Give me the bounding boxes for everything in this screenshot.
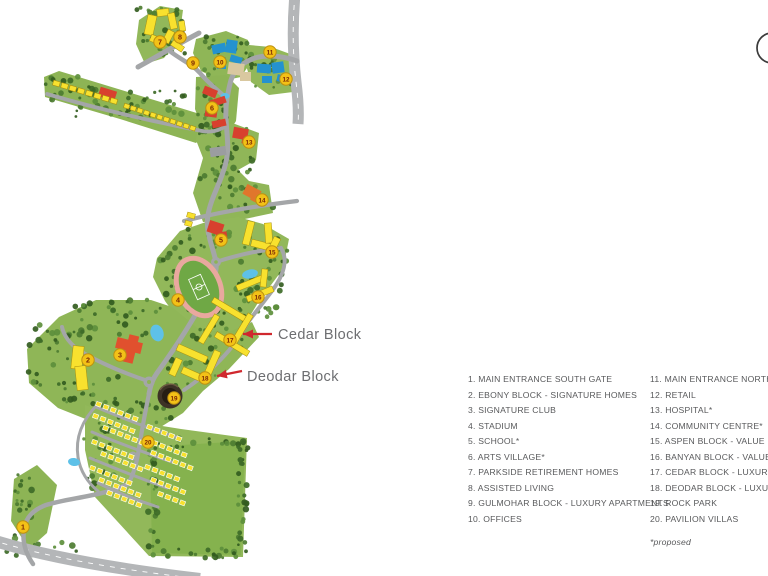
tree-icon — [239, 41, 243, 45]
legend-item: 4. STADIUM — [468, 419, 669, 435]
tree-icon — [165, 254, 171, 260]
tree-icon — [159, 307, 162, 310]
tree-icon — [223, 312, 226, 315]
tree-icon — [237, 494, 240, 497]
tree-icon — [224, 327, 229, 332]
tree-icon — [228, 176, 234, 182]
tree-icon — [265, 314, 270, 319]
tree-icon — [239, 292, 242, 295]
master-plan-map: 1234567891011121314151617181920 Cedar Bl… — [0, 0, 380, 576]
tree-icon — [236, 471, 241, 476]
tree-icon — [202, 67, 207, 72]
tree-icon — [198, 132, 201, 135]
tree-icon — [268, 310, 273, 315]
tree-icon — [254, 63, 257, 66]
building — [240, 72, 251, 81]
marker-number: 18 — [201, 376, 209, 383]
marker-number: 20 — [144, 440, 152, 447]
tree-icon — [116, 313, 119, 316]
tree-icon — [236, 36, 239, 39]
tree-icon — [194, 553, 197, 556]
tree-icon — [238, 447, 243, 452]
tree-icon — [196, 113, 200, 117]
tree-icon — [89, 473, 95, 479]
tree-icon — [77, 308, 82, 313]
tree-icon — [178, 111, 184, 117]
legend-item: 11. MAIN ENTRANCE NORTH GATE — [650, 372, 768, 388]
tree-icon — [204, 34, 209, 39]
tree-icon — [66, 357, 69, 360]
legend-column-2: 11. MAIN ENTRANCE NORTH GATE12. RETAIL13… — [650, 372, 768, 527]
legend-item: 16. BANYAN BLOCK - VALUE PLUS HOMES — [650, 450, 768, 466]
building — [75, 365, 88, 390]
marker-number: 15 — [268, 250, 276, 257]
legend-item: 12. RETAIL — [650, 388, 768, 404]
legend-item: 19. ROCK PARK — [650, 496, 768, 512]
tree-icon — [128, 90, 133, 95]
tree-icon — [172, 245, 178, 251]
tree-icon — [198, 123, 204, 129]
tree-icon — [87, 324, 93, 330]
tree-icon — [254, 85, 257, 88]
tree-icon — [237, 530, 242, 535]
tree-icon — [16, 499, 19, 502]
tree-icon — [18, 483, 23, 488]
map-marker-1: 1 — [17, 521, 29, 533]
map-marker-7: 7 — [154, 36, 166, 48]
tree-icon — [54, 329, 61, 336]
tree-icon — [117, 320, 121, 324]
map-marker-5: 5 — [215, 234, 227, 246]
tree-icon — [244, 482, 250, 488]
map-marker-16: 16 — [252, 291, 264, 303]
legend-item: 14. COMMUNITY CENTRE* — [650, 419, 768, 435]
tree-icon — [126, 300, 129, 303]
tree-icon — [243, 506, 249, 512]
tree-icon — [31, 379, 37, 385]
tree-icon — [151, 552, 156, 557]
building — [257, 64, 272, 74]
tree-icon — [165, 106, 172, 113]
tree-icon — [141, 39, 145, 43]
tree-icon — [16, 491, 20, 495]
marker-number: 8 — [178, 33, 182, 42]
tree-icon — [67, 78, 73, 84]
tree-icon — [236, 503, 240, 507]
map-marker-11: 11 — [264, 46, 276, 58]
legend-item: 7. PARKSIDE RETIREMENT HOMES — [468, 465, 669, 481]
tree-icon — [76, 110, 79, 113]
tree-icon — [202, 173, 208, 179]
legend-item: 13. HOSPITAL* — [650, 403, 768, 419]
marker-number: 9 — [191, 59, 195, 68]
tree-icon — [51, 362, 57, 368]
tree-icon — [93, 312, 97, 316]
tree-icon — [207, 46, 211, 50]
tree-icon — [53, 546, 56, 549]
tree-icon — [109, 300, 115, 306]
tree-icon — [140, 411, 143, 414]
tree-icon — [214, 374, 217, 377]
building — [264, 223, 272, 243]
map-marker-17: 17 — [224, 334, 236, 346]
tree-icon — [165, 553, 171, 559]
tree-icon — [128, 408, 134, 414]
legend-item: 9. GULMOHAR BLOCK - LUXURY APARTMENTS — [468, 496, 669, 512]
tree-icon — [112, 400, 117, 405]
marker-number: 16 — [254, 295, 262, 302]
deodar-block-label: Deodar Block — [247, 369, 339, 385]
tree-icon — [203, 39, 208, 44]
tree-icon — [242, 493, 246, 497]
tree-icon — [203, 245, 206, 248]
tree-icon — [33, 326, 39, 332]
tree-icon — [115, 374, 121, 380]
tree-icon — [232, 142, 235, 145]
tree-icon — [117, 332, 122, 337]
marker-number: 11 — [267, 50, 274, 57]
marker-number: 19 — [170, 396, 178, 403]
tree-icon — [20, 503, 23, 506]
tree-icon — [20, 479, 23, 482]
map-marker-3: 3 — [114, 349, 126, 361]
tree-icon — [145, 509, 151, 515]
tree-icon — [240, 438, 247, 445]
marker-number: 4 — [176, 296, 180, 305]
tree-icon — [230, 193, 235, 198]
tree-icon — [73, 331, 76, 334]
tree-icon — [196, 86, 200, 90]
tree-icon — [244, 41, 249, 46]
tree-icon — [206, 72, 211, 77]
tree-icon — [65, 401, 68, 404]
legend-item: 10. OFFICES — [468, 512, 669, 528]
tree-icon — [172, 110, 177, 115]
tree-icon — [108, 443, 111, 446]
tree-icon — [221, 556, 224, 559]
tree-icon — [249, 156, 252, 159]
map-marker-8: 8 — [174, 31, 186, 43]
tree-icon — [57, 382, 61, 386]
tree-icon — [86, 335, 92, 341]
tree-icon — [163, 291, 170, 298]
tree-icon — [146, 39, 149, 42]
tree-icon — [189, 248, 196, 255]
map-marker-9: 9 — [187, 57, 199, 69]
tree-icon — [168, 415, 174, 421]
tree-icon — [219, 321, 224, 326]
tree-icon — [161, 258, 166, 263]
tree-icon — [153, 446, 157, 450]
tree-icon — [82, 437, 85, 440]
legend-column-1: 1. MAIN ENTRANCE SOUTH GATE2. EBONY BLOC… — [468, 372, 669, 527]
tree-icon — [140, 334, 144, 338]
tree-icon — [159, 90, 162, 93]
cedar-block-label: Cedar Block — [278, 327, 362, 343]
legend-item: 8. ASSISTED LIVING — [468, 481, 669, 497]
tree-icon — [35, 337, 42, 344]
tree-icon — [98, 422, 101, 425]
tree-icon — [241, 517, 245, 521]
tree-icon — [25, 508, 28, 511]
marker-number: 1 — [21, 523, 25, 532]
tree-icon — [46, 330, 49, 333]
tree-icon — [78, 97, 81, 100]
tree-icon — [135, 400, 138, 403]
tree-icon — [224, 441, 229, 446]
tree-icon — [208, 345, 214, 351]
tree-icon — [243, 500, 249, 506]
building — [262, 76, 272, 83]
legend-item: 18. DEODAR BLOCK - LUXURY HOMES — [650, 481, 768, 497]
tree-icon — [123, 313, 129, 319]
tree-icon — [87, 85, 90, 88]
tree-icon — [212, 552, 216, 556]
tree-icon — [179, 240, 184, 245]
tree-icon — [122, 321, 128, 327]
building — [157, 8, 170, 16]
tree-icon — [26, 369, 32, 375]
tree-icon — [75, 115, 78, 118]
tree-icon — [113, 397, 117, 401]
tree-icon — [245, 445, 250, 450]
legend-item: 6. ARTS VILLAGE* — [468, 450, 669, 466]
tree-icon — [143, 331, 148, 336]
tree-icon — [228, 185, 232, 189]
tree-icon — [220, 442, 224, 446]
tree-icon — [146, 543, 152, 549]
tree-icon — [213, 67, 216, 70]
tree-icon — [54, 338, 58, 342]
tree-icon — [155, 539, 160, 544]
tree-icon — [128, 310, 133, 315]
north-indicator — [746, 24, 768, 72]
tree-icon — [81, 303, 85, 307]
tree-icon — [37, 322, 43, 328]
tree-icon — [243, 203, 247, 207]
building — [178, 21, 185, 32]
tree-icon — [80, 330, 84, 334]
tree-icon — [154, 310, 158, 314]
tree-icon — [91, 392, 96, 397]
tree-icon — [28, 487, 35, 494]
tree-icon — [62, 381, 66, 385]
tree-icon — [71, 396, 77, 402]
legend-item: 15. ASPEN BLOCK - VALUE PLUS HOMES — [650, 434, 768, 450]
tree-icon — [208, 437, 211, 440]
tree-icon — [62, 397, 66, 401]
tree-icon — [166, 366, 171, 371]
tree-icon — [204, 122, 210, 128]
tree-icon — [81, 391, 85, 395]
tree-icon — [206, 548, 211, 553]
map-marker-10: 10 — [214, 56, 226, 68]
marker-number: 7 — [158, 38, 162, 47]
tree-icon — [134, 317, 137, 320]
legend-item: 1. MAIN ENTRANCE SOUTH GATE — [468, 372, 669, 388]
tree-icon — [230, 165, 237, 172]
tree-icon — [47, 347, 51, 351]
tree-icon — [39, 383, 43, 387]
tree-icon — [27, 342, 33, 348]
legend-item: 3. SIGNATURE CLUB — [468, 403, 669, 419]
tree-icon — [73, 304, 79, 310]
tree-icon — [183, 361, 189, 367]
building — [271, 61, 284, 74]
tree-icon — [239, 308, 243, 312]
marker-number: 12 — [282, 77, 290, 84]
tree-icon — [126, 96, 131, 101]
tree-icon — [237, 536, 243, 542]
legend-item: 20. PAVILION VILLAS — [650, 512, 768, 528]
tree-icon — [75, 74, 81, 80]
tree-icon — [106, 377, 111, 382]
tree-icon — [21, 500, 24, 503]
tree-icon — [188, 237, 192, 241]
tree-icon — [285, 249, 289, 253]
tree-icon — [15, 502, 19, 506]
tree-icon — [245, 170, 250, 175]
map-marker-20: 20 — [142, 436, 154, 448]
tree-icon — [203, 555, 208, 560]
tree-icon — [242, 298, 247, 303]
tree-icon — [254, 285, 260, 291]
tree-icon — [164, 417, 167, 420]
tree-icon — [200, 244, 203, 247]
tree-icon — [139, 401, 143, 405]
tree-icon — [220, 547, 224, 551]
tree-icon — [151, 545, 154, 548]
tree-icon — [151, 460, 157, 466]
tree-icon — [175, 444, 180, 449]
tree-icon — [17, 507, 22, 512]
tree-icon — [208, 443, 211, 446]
building — [225, 39, 238, 53]
tree-icon — [243, 246, 246, 249]
tree-icon — [212, 38, 216, 42]
map-marker-4: 4 — [172, 294, 184, 306]
tree-icon — [273, 304, 279, 310]
marker-number: 14 — [258, 198, 266, 205]
tree-icon — [164, 100, 169, 105]
map-marker-13: 13 — [243, 136, 255, 148]
map-marker-12: 12 — [280, 73, 292, 85]
tree-icon — [238, 457, 244, 463]
tree-icon — [35, 372, 39, 376]
tree-icon — [172, 102, 176, 106]
tree-icon — [182, 446, 185, 449]
tree-icon — [233, 145, 239, 151]
tree-icon — [154, 509, 161, 516]
legend-item: 2. EBONY BLOCK - SIGNATURE HOMES — [468, 388, 669, 404]
tree-icon — [245, 51, 248, 54]
tree-icon — [198, 328, 202, 332]
tree-icon — [267, 276, 272, 281]
map-marker-6: 6 — [206, 102, 218, 114]
tree-icon — [64, 387, 67, 390]
tree-icon — [239, 187, 242, 190]
tree-icon — [238, 481, 241, 484]
tree-icon — [153, 91, 156, 94]
tree-icon — [203, 117, 207, 121]
tree-icon — [218, 196, 221, 199]
tree-icon — [180, 93, 185, 98]
tree-icon — [80, 318, 83, 321]
map-marker-15: 15 — [266, 246, 278, 258]
tree-icon — [148, 528, 153, 533]
tree-icon — [107, 305, 111, 309]
tree-icon — [161, 548, 167, 554]
tree-icon — [277, 288, 283, 294]
tree-icon — [189, 551, 194, 556]
tree-icon — [244, 549, 248, 553]
tree-icon — [188, 234, 191, 237]
legend-footnote: *proposed — [650, 537, 691, 547]
tree-icon — [263, 306, 267, 310]
tree-icon — [211, 167, 215, 171]
marker-number: 6 — [210, 104, 214, 113]
tree-icon — [183, 51, 187, 55]
tree-icon — [103, 400, 108, 405]
map-marker-2: 2 — [82, 354, 94, 366]
tree-icon — [139, 6, 143, 10]
map-marker-18: 18 — [199, 372, 211, 384]
tree-icon — [142, 98, 146, 102]
tree-icon — [69, 542, 76, 549]
tree-icon — [16, 473, 19, 476]
marker-number: 3 — [118, 351, 122, 360]
tree-icon — [232, 551, 236, 555]
tree-icon — [224, 549, 229, 554]
tree-icon — [145, 298, 149, 302]
tree-icon — [73, 381, 77, 385]
tree-icon — [272, 86, 275, 89]
tree-icon — [186, 227, 191, 232]
tree-icon — [269, 259, 273, 263]
tree-icon — [164, 276, 169, 281]
tree-icon — [243, 540, 248, 545]
tree-icon — [237, 170, 240, 173]
tree-icon — [92, 99, 98, 105]
tree-icon — [27, 504, 31, 508]
marker-number: 13 — [245, 140, 253, 147]
legend-item: 5. SCHOOL* — [468, 434, 669, 450]
tree-icon — [177, 548, 180, 551]
tree-icon — [58, 90, 64, 96]
tree-icon — [92, 383, 95, 386]
marker-number: 17 — [226, 338, 234, 345]
tree-icon — [178, 256, 182, 260]
tree-icon — [44, 82, 48, 86]
tree-icon — [174, 90, 177, 93]
marker-number: 5 — [219, 236, 223, 245]
tree-icon — [111, 308, 116, 313]
tree-icon — [230, 440, 236, 446]
map-marker-14: 14 — [256, 194, 268, 206]
tree-icon — [59, 540, 64, 545]
tree-icon — [237, 543, 240, 546]
tree-icon — [240, 338, 243, 341]
tree-icon — [153, 488, 156, 491]
legend-item: 17. CEDAR BLOCK - LUXURY HOMES — [650, 465, 768, 481]
tree-icon — [56, 350, 59, 353]
map-marker-19: 19 — [168, 392, 180, 404]
marker-number: 10 — [216, 60, 224, 67]
tree-icon — [238, 259, 244, 265]
tree-icon — [233, 187, 238, 192]
tree-icon — [75, 549, 78, 552]
tree-icon — [155, 421, 159, 425]
